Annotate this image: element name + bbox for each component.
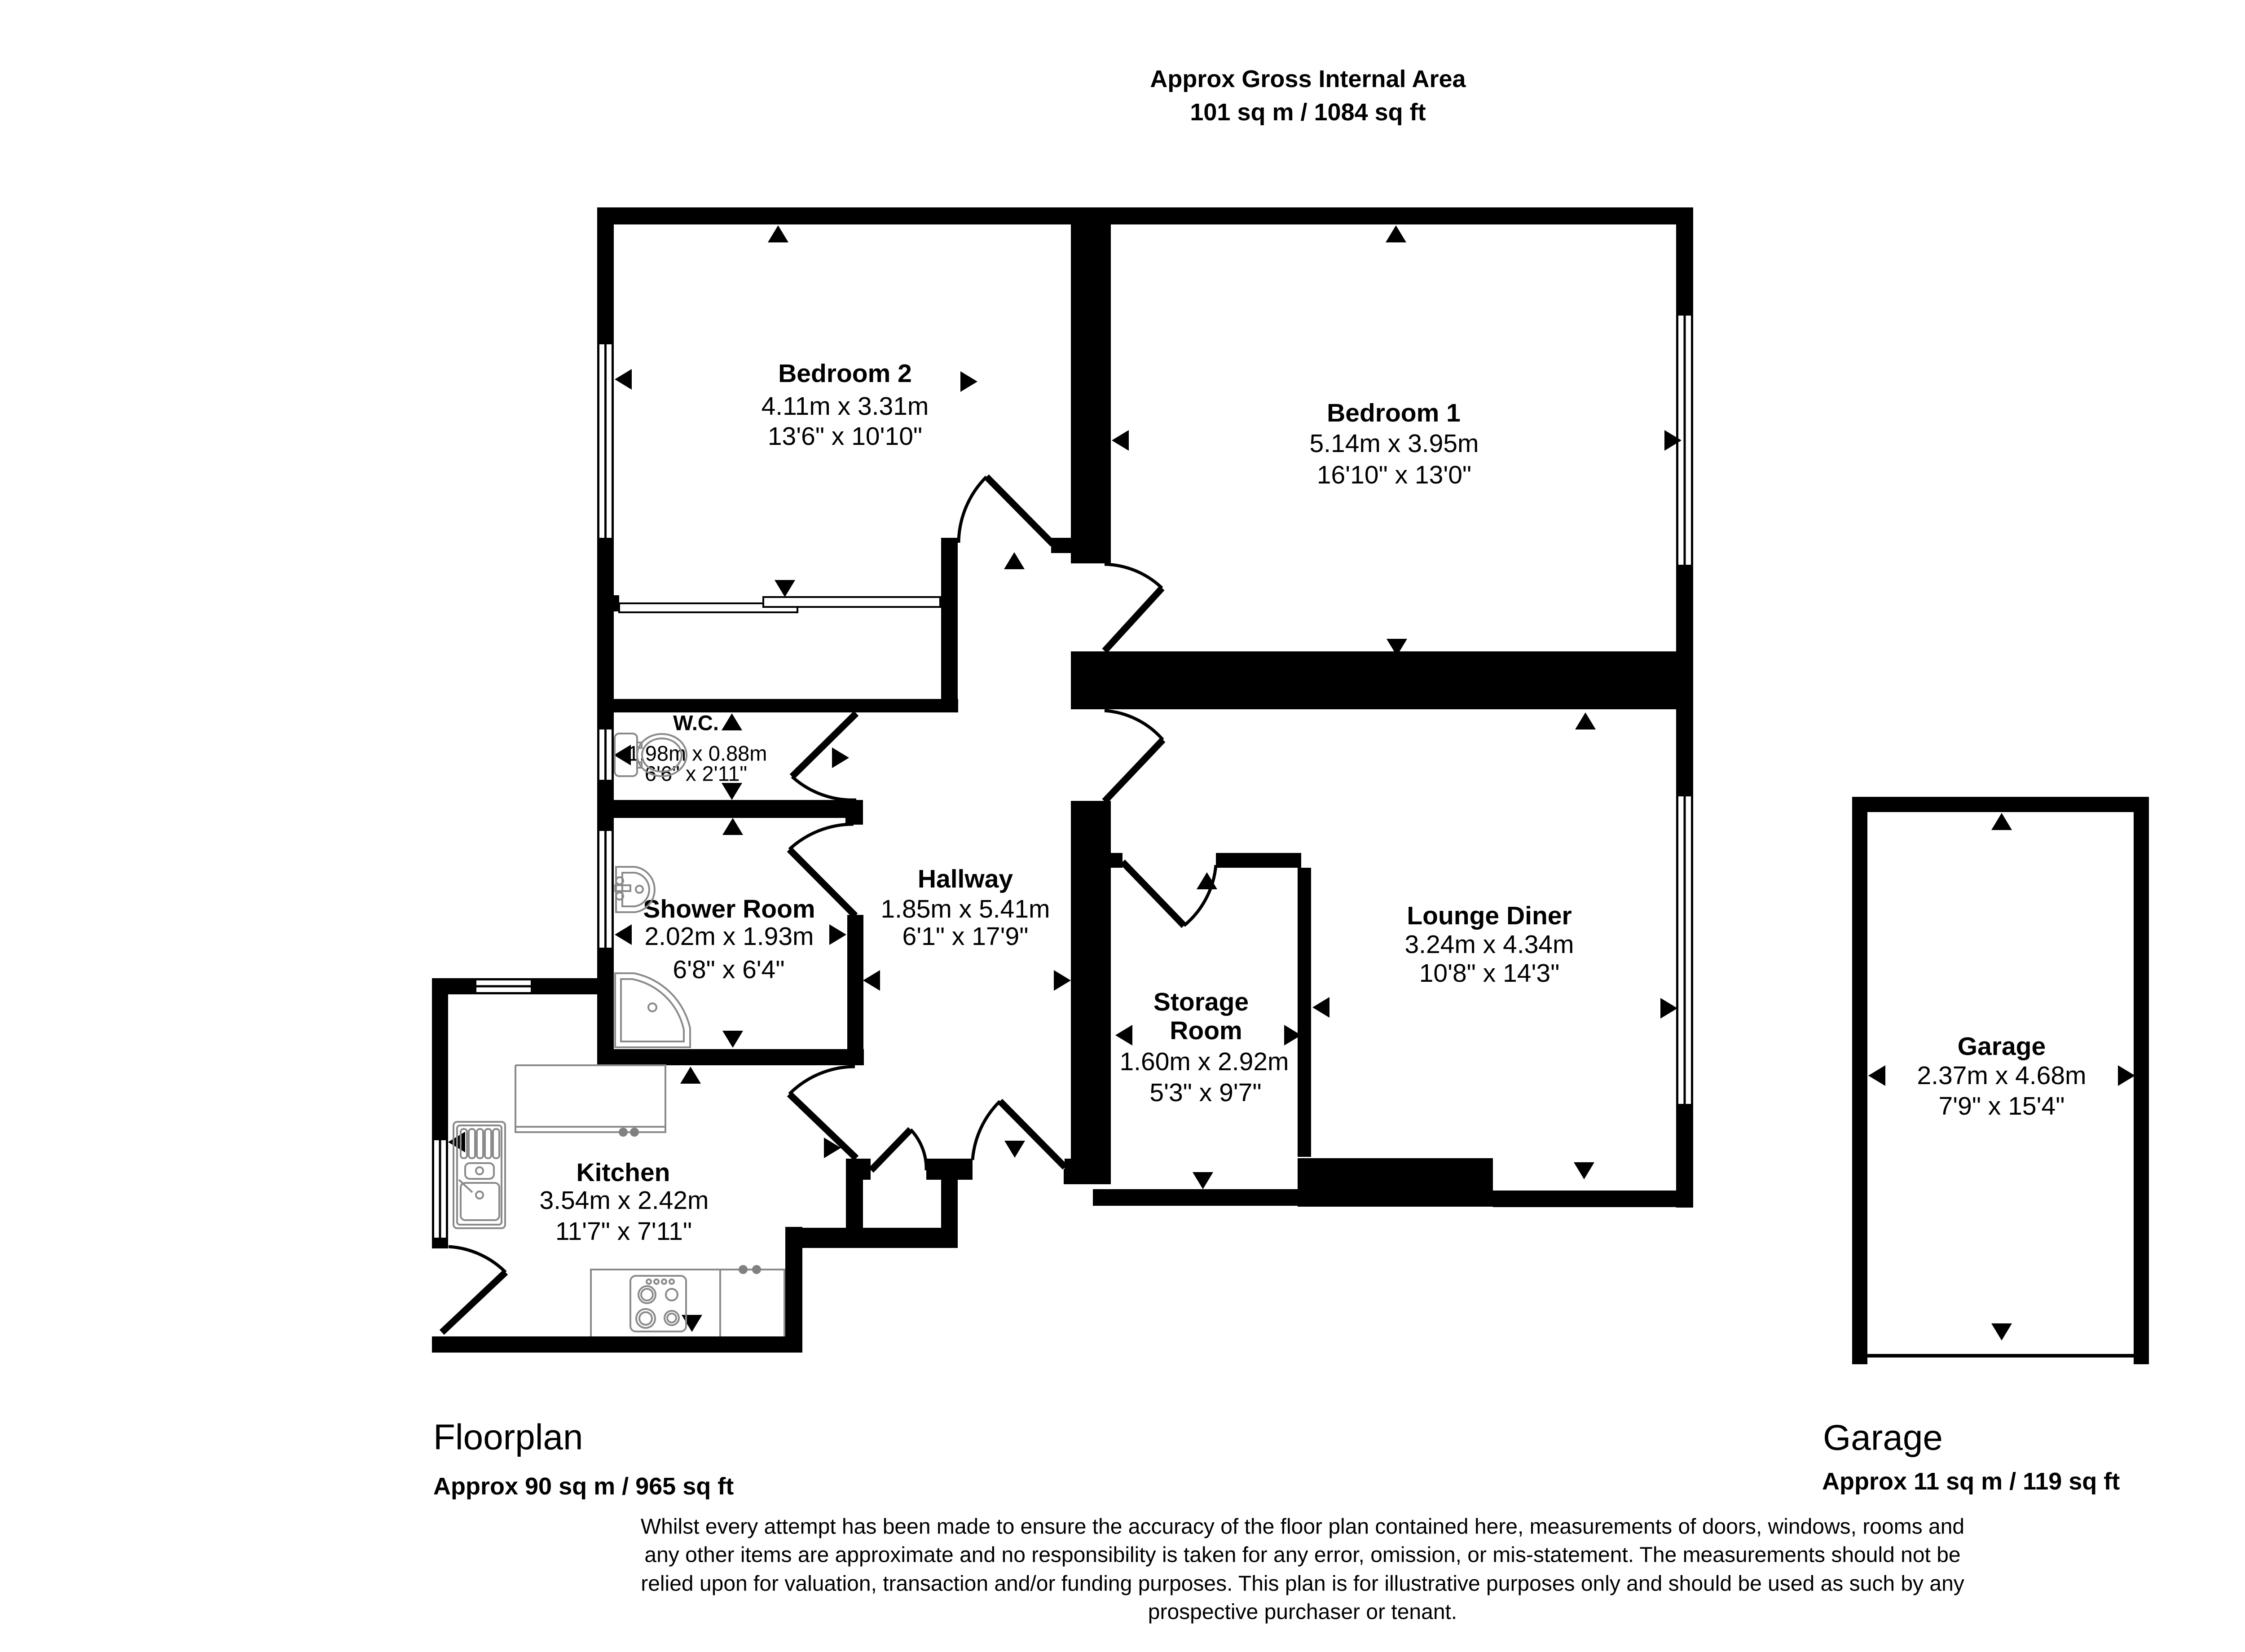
svg-text:W.C.: W.C. [673, 711, 719, 735]
svg-text:Bedroom 2: Bedroom 2 [778, 359, 912, 388]
svg-text:2.02m x 1.93m: 2.02m x 1.93m [644, 922, 814, 951]
svg-text:13'6" x 10'10": 13'6" x 10'10" [768, 422, 922, 451]
svg-text:Approx 90 sq m / 965 sq ft: Approx 90 sq m / 965 sq ft [433, 1473, 734, 1500]
svg-text:Approx 11 sq m / 119 sq ft: Approx 11 sq m / 119 sq ft [1822, 1468, 2120, 1495]
svg-text:6'6" x 2'11": 6'6" x 2'11" [645, 762, 747, 786]
svg-text:10'8" x 14'3": 10'8" x 14'3" [1419, 959, 1560, 988]
svg-text:Approx Gross Internal Area: Approx Gross Internal Area [1150, 66, 1466, 92]
svg-text:Kitchen: Kitchen [576, 1158, 670, 1187]
svg-text:5'3" x 9'7": 5'3" x 9'7" [1149, 1078, 1261, 1107]
svg-text:11'7" x 7'11": 11'7" x 7'11" [555, 1217, 692, 1246]
svg-text:any other items are approximat: any other items are approximate and no r… [644, 1543, 1960, 1567]
svg-text:2.37m x 4.68m: 2.37m x 4.68m [1917, 1061, 2086, 1090]
svg-text:relied upon for valuation, tra: relied upon for valuation, transaction a… [641, 1572, 1964, 1596]
svg-text:Floorplan: Floorplan [433, 1417, 583, 1457]
svg-text:6'1" x 17'9": 6'1" x 17'9" [902, 922, 1029, 951]
svg-text:6'8" x 6'4": 6'8" x 6'4" [673, 955, 784, 984]
svg-text:16'10" x 13'0": 16'10" x 13'0" [1317, 461, 1471, 489]
svg-text:4.11m x 3.31m: 4.11m x 3.31m [762, 392, 929, 421]
svg-text:Garage: Garage [1823, 1418, 1943, 1458]
svg-text:Lounge Diner: Lounge Diner [1407, 901, 1571, 930]
svg-text:101 sq m / 1084 sq ft: 101 sq m / 1084 sq ft [1190, 99, 1426, 126]
svg-text:Storage: Storage [1153, 988, 1249, 1016]
svg-text:Room: Room [1170, 1016, 1242, 1045]
svg-text:prospective purchaser or tenan: prospective purchaser or tenant. [1148, 1600, 1457, 1624]
svg-text:1.85m x 5.41m: 1.85m x 5.41m [880, 895, 1050, 923]
svg-text:7'9" x 15'4": 7'9" x 15'4" [1939, 1092, 2065, 1120]
svg-text:Hallway: Hallway [918, 865, 1013, 893]
svg-text:3.54m x 2.42m: 3.54m x 2.42m [539, 1186, 709, 1215]
svg-text:Whilst every attempt has been: Whilst every attempt has been made to en… [641, 1515, 1964, 1539]
svg-text:5.14m x 3.95m: 5.14m x 3.95m [1309, 429, 1479, 458]
svg-text:1.60m x 2.92m: 1.60m x 2.92m [1119, 1047, 1289, 1076]
svg-text:3.24m x 4.34m: 3.24m x 4.34m [1404, 930, 1574, 959]
svg-text:Shower Room: Shower Room [643, 895, 815, 923]
svg-text:Bedroom 1: Bedroom 1 [1327, 399, 1461, 427]
svg-text:Garage: Garage [1958, 1032, 2046, 1061]
